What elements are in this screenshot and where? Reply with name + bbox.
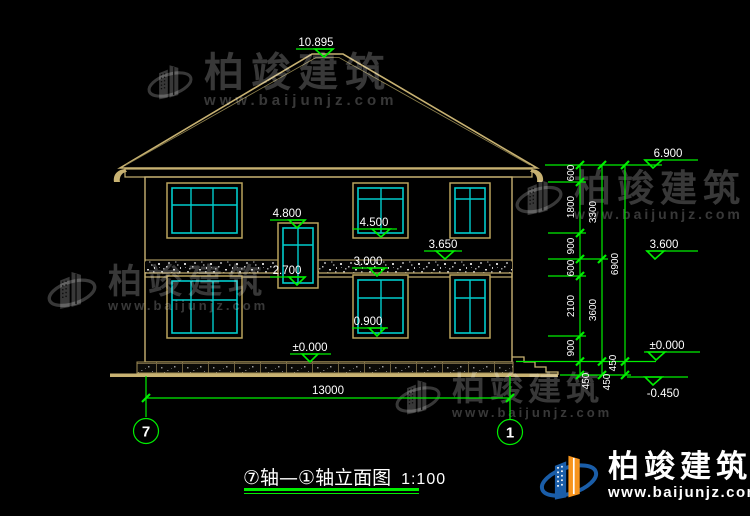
svg-text:600: 600	[566, 259, 577, 276]
svg-text:10.895: 10.895	[298, 37, 333, 49]
level-marker-lower-window-head: 3.000	[352, 256, 388, 276]
dimension-annotations: 10.895 4.800 2.700 4.500 3.000 0.900	[0, 0, 750, 516]
svg-text:3.600: 3.600	[650, 239, 679, 251]
level-marker-belt-top: 3.650	[424, 239, 462, 259]
drawing-title: ⑦轴—①轴立面图	[243, 463, 391, 490]
svg-text:450: 450	[602, 373, 613, 390]
drawing-scale: 1:100	[401, 471, 446, 489]
cad-elevation-canvas: 柏竣建筑 www.baijunjz.com 柏竣建筑 www.baijunjz.…	[0, 0, 750, 516]
svg-text:2100: 2100	[566, 294, 577, 317]
svg-text:7: 7	[142, 424, 150, 441]
svg-text:3.000: 3.000	[354, 256, 383, 268]
svg-text:±0.000: ±0.000	[649, 340, 684, 352]
company-site: www.baijunjz.com	[608, 484, 750, 501]
svg-text:2.700: 2.700	[273, 265, 302, 277]
drawing-title-block: ⑦轴—①轴立面图 1:100	[243, 463, 463, 490]
svg-text:600: 600	[566, 164, 577, 181]
level-marker-lower-window-sill: 0.900	[352, 316, 388, 336]
level-marker-second-floor: 3.600	[646, 239, 698, 259]
extension-lines	[516, 165, 662, 375]
svg-text:450: 450	[608, 354, 619, 371]
axis-bubble-7: 7	[134, 419, 159, 444]
axis-bubble-1: 1	[498, 420, 523, 445]
svg-text:450: 450	[581, 372, 592, 389]
level-marker-ground-right: ±0.000	[644, 340, 700, 360]
level-marker-stair-window-sill: 2.700	[270, 265, 306, 285]
svg-text:-0.450: -0.450	[647, 388, 680, 400]
company-brand: 柏竣建筑	[608, 451, 750, 484]
level-marker-upper-window-head: 4.800	[270, 208, 306, 228]
svg-text:1800: 1800	[566, 195, 577, 218]
dimension-total-width: 13000	[142, 376, 514, 419]
level-marker-upper-window-sill: 4.500	[353, 217, 397, 237]
level-marker-ground-center: ±0.000	[290, 342, 331, 362]
svg-text:3.650: 3.650	[429, 239, 458, 251]
svg-text:0.900: 0.900	[354, 316, 383, 328]
svg-text:3300: 3300	[588, 200, 599, 223]
svg-text:4.800: 4.800	[273, 208, 302, 220]
svg-text:3600: 3600	[588, 298, 599, 321]
company-logo-icon	[538, 444, 600, 508]
title-underline-thick	[244, 488, 419, 491]
svg-text:1: 1	[506, 425, 514, 442]
svg-text:13000: 13000	[312, 385, 344, 397]
company-logo: 柏竣建筑 www.baijunjz.com	[538, 444, 750, 508]
level-marker-site-level: -0.450	[627, 377, 688, 400]
svg-text:900: 900	[566, 237, 577, 254]
svg-text:6900: 6900	[610, 252, 621, 275]
level-marker-ridge: 10.895	[296, 37, 334, 57]
svg-text:±0.000: ±0.000	[292, 342, 327, 354]
svg-text:6.900: 6.900	[654, 148, 683, 160]
dimension-chain-vertical: 600 1800 900 600 2100 900 450 3300 3600 …	[566, 161, 629, 390]
title-underline-thin	[244, 493, 419, 494]
svg-text:4.500: 4.500	[360, 217, 389, 229]
svg-text:900: 900	[566, 339, 577, 356]
